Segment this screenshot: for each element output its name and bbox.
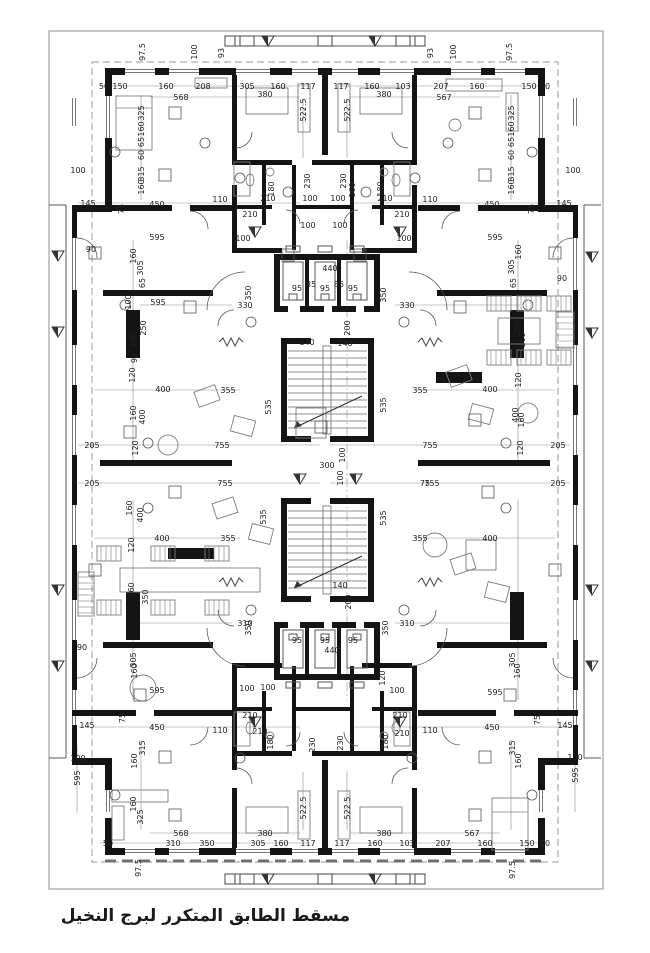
- level-marker-icon: [52, 327, 64, 337]
- room-tag: [89, 564, 101, 576]
- dimension-label: 300: [319, 461, 334, 470]
- dimension-label: 160: [348, 182, 357, 197]
- dimension-label: 380: [376, 829, 391, 838]
- dimension-label: 100: [239, 684, 254, 693]
- dimension-label: 65: [137, 137, 146, 147]
- door-swing-arc: [553, 658, 573, 678]
- dimension-label: 440: [322, 264, 337, 273]
- dimension-label: 315: [137, 166, 146, 181]
- dimension-label: 350: [513, 319, 522, 334]
- dimension-label: 230: [308, 737, 317, 752]
- level-marker-icon: [262, 874, 274, 884]
- dimension-label: 200: [344, 594, 353, 609]
- dimension-label: 210: [392, 711, 407, 720]
- dimension-label: 50: [103, 839, 113, 848]
- floor-plan-drawing: 97.5100931009397.55015016020830516011711…: [0, 0, 650, 953]
- dimension-label: 140: [299, 338, 314, 347]
- dimension-label: 210: [394, 210, 409, 219]
- dimension-label: 207: [433, 82, 448, 91]
- dimension-label: 522.5: [343, 797, 352, 820]
- dimension-label: 350: [141, 589, 150, 604]
- dimension-label: 100: [300, 221, 315, 230]
- dimension-label: 330: [399, 301, 414, 310]
- dimension-label: 207: [435, 839, 450, 848]
- dimension-label: 355: [412, 534, 427, 543]
- dimension-label: 440: [324, 646, 339, 655]
- dimension-label: 315: [138, 740, 147, 755]
- dimension-label: 160: [137, 121, 146, 136]
- door-tag: [523, 300, 533, 310]
- dimension-label: 595: [150, 298, 165, 307]
- dimension-label: 90: [86, 245, 96, 254]
- dimension-label: 200: [343, 320, 352, 335]
- dimension-label: 595: [487, 233, 502, 242]
- dimension-label: 97.5: [508, 861, 517, 879]
- door-swing-arc: [218, 610, 234, 626]
- level-marker-icon: [52, 251, 64, 261]
- dimension-label: 755: [217, 479, 232, 488]
- room-tag: [315, 421, 327, 433]
- dimension-label: 595: [571, 767, 580, 782]
- dimension-label: 75: [117, 204, 126, 214]
- dimension-label: 400: [155, 385, 170, 394]
- dimension-label: 120: [127, 537, 136, 552]
- dimension-label: 755: [422, 441, 437, 450]
- dimension-label: 755: [214, 441, 229, 450]
- level-marker-icon: [52, 585, 64, 595]
- dimension-label: 100: [449, 44, 458, 59]
- level-marker-icon: [586, 252, 598, 262]
- dimension-label: 160: [518, 332, 527, 347]
- dimension-label: 160: [477, 839, 492, 848]
- dimension-label: 100: [389, 686, 404, 695]
- room-tag: [482, 486, 494, 498]
- dimension-label: 65: [509, 278, 518, 288]
- dimension-label: 103: [395, 82, 410, 91]
- floor-plan-page: 97.5100931009397.55015016020830516011711…: [0, 0, 650, 953]
- dimension-label: 93: [217, 48, 226, 58]
- bottom-balcony: [225, 874, 425, 884]
- dimension-label: 90: [77, 643, 87, 652]
- dimension-label: 100: [124, 294, 133, 309]
- room-tag: [159, 169, 171, 181]
- dimension-label: 100: [336, 470, 345, 485]
- dimension-label: 355: [220, 386, 235, 395]
- dimension-label: 595: [149, 233, 164, 242]
- dimension-label: 160: [514, 753, 523, 768]
- dimension-label: 160: [158, 82, 173, 91]
- door-swing-arc: [553, 238, 573, 258]
- dimension-label: 160: [129, 796, 138, 811]
- dimension-label: 100: [235, 234, 250, 243]
- dimension-label: 250: [139, 320, 148, 335]
- dimension-label: 145: [79, 721, 94, 730]
- dimension-label: 110: [422, 195, 437, 204]
- dimension-label: 100: [565, 166, 580, 175]
- dimension-label: 210: [242, 210, 257, 219]
- dimension-label: 522.5: [343, 99, 352, 122]
- room-tag: [184, 301, 196, 313]
- door-tag: [527, 790, 537, 800]
- dimension-label: 400: [138, 409, 147, 424]
- dimension-label: 65: [138, 278, 147, 288]
- door-tag: [246, 605, 256, 615]
- dimension-label: 93: [426, 48, 435, 58]
- room-tag: [479, 751, 491, 763]
- dimension-label: 117: [333, 82, 348, 91]
- dimension-label: 160: [270, 82, 285, 91]
- door-tag: [443, 138, 453, 148]
- door-tag: [235, 173, 245, 183]
- door-tag: [143, 438, 153, 448]
- dimension-label: 100: [330, 194, 345, 203]
- door-tag: [361, 187, 371, 197]
- room-tag: [169, 809, 181, 821]
- dimension-label: 95: [292, 284, 302, 293]
- door-tag: [200, 138, 210, 148]
- door-swing-arc: [420, 310, 436, 326]
- dimension-label: 208: [195, 82, 210, 91]
- dimension-label: 535: [264, 399, 273, 414]
- dimension-label: 65: [507, 137, 516, 147]
- dimension-label: 305: [136, 260, 145, 275]
- dimension-label: 210: [242, 711, 257, 720]
- dimension-label: 595: [149, 686, 164, 695]
- dimension-label: 93: [130, 353, 139, 363]
- room-tag: [549, 564, 561, 576]
- door-swing-arc: [236, 768, 252, 784]
- door-swing-arc: [420, 610, 436, 626]
- dimension-label: 100: [338, 447, 347, 462]
- dimension-label: 100: [70, 754, 85, 763]
- stair-direction-arrow: [294, 396, 362, 428]
- dimension-label: 535: [379, 510, 388, 525]
- dimension-label: 350: [381, 620, 390, 635]
- dimension-label: 567: [436, 93, 451, 102]
- door-tag: [399, 605, 409, 615]
- dimension-label: 95: [348, 284, 358, 293]
- dimension-label: 400: [482, 385, 497, 394]
- dimension-label: 180: [266, 734, 275, 749]
- level-marker-icon: [586, 328, 598, 338]
- dimension-label: 95: [320, 636, 330, 645]
- dimension-label: 117: [300, 82, 315, 91]
- dimension-label: 450: [149, 723, 164, 732]
- dimension-label: 140: [332, 581, 347, 590]
- dimension-label: 97.5: [134, 859, 143, 877]
- dimension-label: 450: [484, 200, 499, 209]
- dimension-label: 310: [165, 839, 180, 848]
- dimension-label: 160: [469, 82, 484, 91]
- level-marker-icon: [262, 36, 274, 46]
- dimension-label: 90: [557, 274, 567, 283]
- room-tag: [124, 426, 136, 438]
- door-tag: [410, 173, 420, 183]
- dimension-label: 160: [130, 753, 139, 768]
- door-swing-arc: [392, 132, 408, 148]
- room-tag: [454, 301, 466, 313]
- dimension-label: 355: [412, 386, 427, 395]
- dimension-label: 160: [513, 663, 522, 678]
- door-swing-arc: [442, 211, 460, 229]
- elevator-bank-top: [274, 246, 380, 312]
- dimension-label: 595: [487, 688, 502, 697]
- dimension-label: 350: [199, 839, 214, 848]
- level-marker-icon: [52, 661, 64, 671]
- level-marker-icon: [350, 474, 362, 484]
- dimension-label: 95: [320, 284, 330, 293]
- dimension-label: 95: [292, 636, 302, 645]
- room-tag: [479, 169, 491, 181]
- dimension-label: 380: [257, 90, 272, 99]
- room-tag: [504, 689, 516, 701]
- dimension-label: 380: [376, 90, 391, 99]
- dimension-label: 120: [514, 372, 523, 387]
- dimension-label: 120: [131, 440, 140, 455]
- dimension-label: 145: [556, 199, 571, 208]
- dimension-label: 150: [112, 82, 127, 91]
- room-tag: [169, 107, 181, 119]
- door-swing-arc: [236, 132, 252, 148]
- dimension-label: 330: [237, 301, 252, 310]
- dimension-label: 230: [336, 735, 345, 750]
- dimension-label: 150: [521, 82, 536, 91]
- door-swing-arc: [190, 211, 208, 229]
- level-marker-icon: [294, 474, 306, 484]
- level-marker-icon: [369, 36, 381, 46]
- dimension-label: 160: [507, 179, 516, 194]
- dimension-label: 145: [557, 721, 572, 730]
- dimension-label: 100: [70, 166, 85, 175]
- dimension-label: 205: [550, 479, 565, 488]
- stair-direction-arrow: [294, 556, 362, 588]
- dimension-label: 160: [273, 839, 288, 848]
- dimension-label: 100: [332, 221, 347, 230]
- room-tag: [169, 486, 181, 498]
- dimension-label: 325: [137, 105, 146, 120]
- dimension-label: 160: [127, 582, 136, 597]
- dimension-label: 205: [84, 441, 99, 450]
- dimension-label: 75: [527, 204, 536, 214]
- dimension-label: 160: [514, 244, 523, 259]
- dimension-label: 595: [73, 770, 82, 785]
- dimension-label: 535: [379, 397, 388, 412]
- dimension-label: 315: [508, 740, 517, 755]
- dimension-label: 97.5: [505, 43, 514, 61]
- right-walkway: [584, 205, 601, 758]
- level-marker-icon: [369, 874, 381, 884]
- dimension-label: 450: [484, 723, 499, 732]
- dimension-label: 100: [190, 44, 199, 59]
- dimension-label: 568: [173, 829, 188, 838]
- dimension-label: 400: [154, 534, 169, 543]
- dimension-label: 205: [550, 441, 565, 450]
- room-tag: [159, 751, 171, 763]
- door-tag: [501, 503, 511, 513]
- dimension-label: 180: [267, 181, 276, 196]
- dimension-label: 160: [129, 332, 138, 347]
- door-swing-arc: [442, 727, 460, 745]
- dimension-label: 450: [149, 200, 164, 209]
- dimension-label: 230: [303, 173, 312, 188]
- dimension-label: 95: [348, 636, 358, 645]
- door-tag: [399, 317, 409, 327]
- dimension-label: 160: [367, 839, 382, 848]
- dimension-label: 400: [482, 534, 497, 543]
- dimension-label: 75: [118, 713, 127, 723]
- dimension-label: 160: [507, 121, 516, 136]
- dimension-label: 103: [399, 839, 414, 848]
- dimension-label: 100: [260, 683, 275, 692]
- dimension-label: 230: [339, 173, 348, 188]
- dimension-label: 85: [306, 280, 316, 289]
- dimension-label: 350: [244, 620, 253, 635]
- dimension-label: 50: [99, 82, 109, 91]
- dimension-label: 97.5: [138, 43, 147, 61]
- dimension-label: 522.5: [299, 797, 308, 820]
- dimension-label: 160: [125, 500, 134, 515]
- dimension-label: 50: [540, 839, 550, 848]
- dimension-label: 180: [376, 181, 385, 196]
- top-balcony: [225, 36, 425, 46]
- dimension-label: 205: [84, 479, 99, 488]
- dimension-label: 120: [378, 670, 387, 685]
- door-tag: [527, 147, 537, 157]
- door-swing-arc: [77, 658, 97, 678]
- room-tag: [469, 107, 481, 119]
- dimension-label: 305: [250, 839, 265, 848]
- door-swing-arc: [218, 310, 234, 326]
- room-tag: [469, 809, 481, 821]
- dimension-label: 110: [422, 726, 437, 735]
- dimension-label: 380: [257, 829, 272, 838]
- left-walkway: [49, 205, 66, 758]
- drawing-caption: مسقط الطابق المتكرر لبرج النخيل: [40, 906, 350, 926]
- dimension-label: 85: [334, 280, 344, 289]
- dimension-label: 120: [516, 440, 525, 455]
- dimension-label: 110: [212, 726, 227, 735]
- dimension-label: 100: [302, 194, 317, 203]
- door-swing-arc: [190, 727, 208, 745]
- door-swing-arc: [392, 768, 408, 784]
- dimension-label: 50: [540, 82, 550, 91]
- dimension-label: 355: [220, 534, 235, 543]
- door-tag: [246, 317, 256, 327]
- dimension-label: 160: [130, 663, 139, 678]
- dimension-label: 140: [337, 339, 352, 348]
- dimension-label: 100: [396, 234, 411, 243]
- dimension-label: 305: [239, 82, 254, 91]
- dimension-label: 535: [259, 509, 268, 524]
- dimension-label: 325: [507, 105, 516, 120]
- dimension-label: 522.5: [299, 99, 308, 122]
- dimension-label: 100: [567, 753, 582, 762]
- dimension-label: 210: [394, 729, 409, 738]
- level-marker-icon: [586, 661, 598, 671]
- dimension-label: 180: [381, 734, 390, 749]
- dimension-label: 567: [464, 829, 479, 838]
- dimension-label: 117: [334, 839, 349, 848]
- dimension-label: 60: [137, 150, 146, 160]
- level-marker-icon: [249, 227, 261, 237]
- dimension-label: 110: [212, 195, 227, 204]
- dimension-label: 145: [80, 199, 95, 208]
- dimension-label: 160: [517, 412, 526, 427]
- dimension-label: 75: [533, 715, 542, 725]
- dimension-label: 350: [379, 287, 388, 302]
- dimension-label: 350: [244, 285, 253, 300]
- dimension-label: 75: [420, 479, 430, 488]
- dimension-label: 160: [137, 179, 146, 194]
- dimension-label: 120: [128, 367, 137, 382]
- door-tag: [283, 187, 293, 197]
- dimension-label: 568: [173, 93, 188, 102]
- dimension-label: 305: [507, 259, 516, 274]
- dimension-label: 400: [136, 507, 145, 522]
- dimension-label: 60: [507, 150, 516, 160]
- door-tag: [110, 790, 120, 800]
- level-marker-icon: [586, 585, 598, 595]
- dimension-label: 150: [519, 839, 534, 848]
- door-tag: [501, 438, 511, 448]
- dimension-label: 160: [129, 405, 138, 420]
- dimension-label: 310: [399, 619, 414, 628]
- dimension-label: 117: [300, 839, 315, 848]
- dimension-label: 315: [507, 166, 516, 181]
- elevator-bank-bottom: [274, 622, 380, 688]
